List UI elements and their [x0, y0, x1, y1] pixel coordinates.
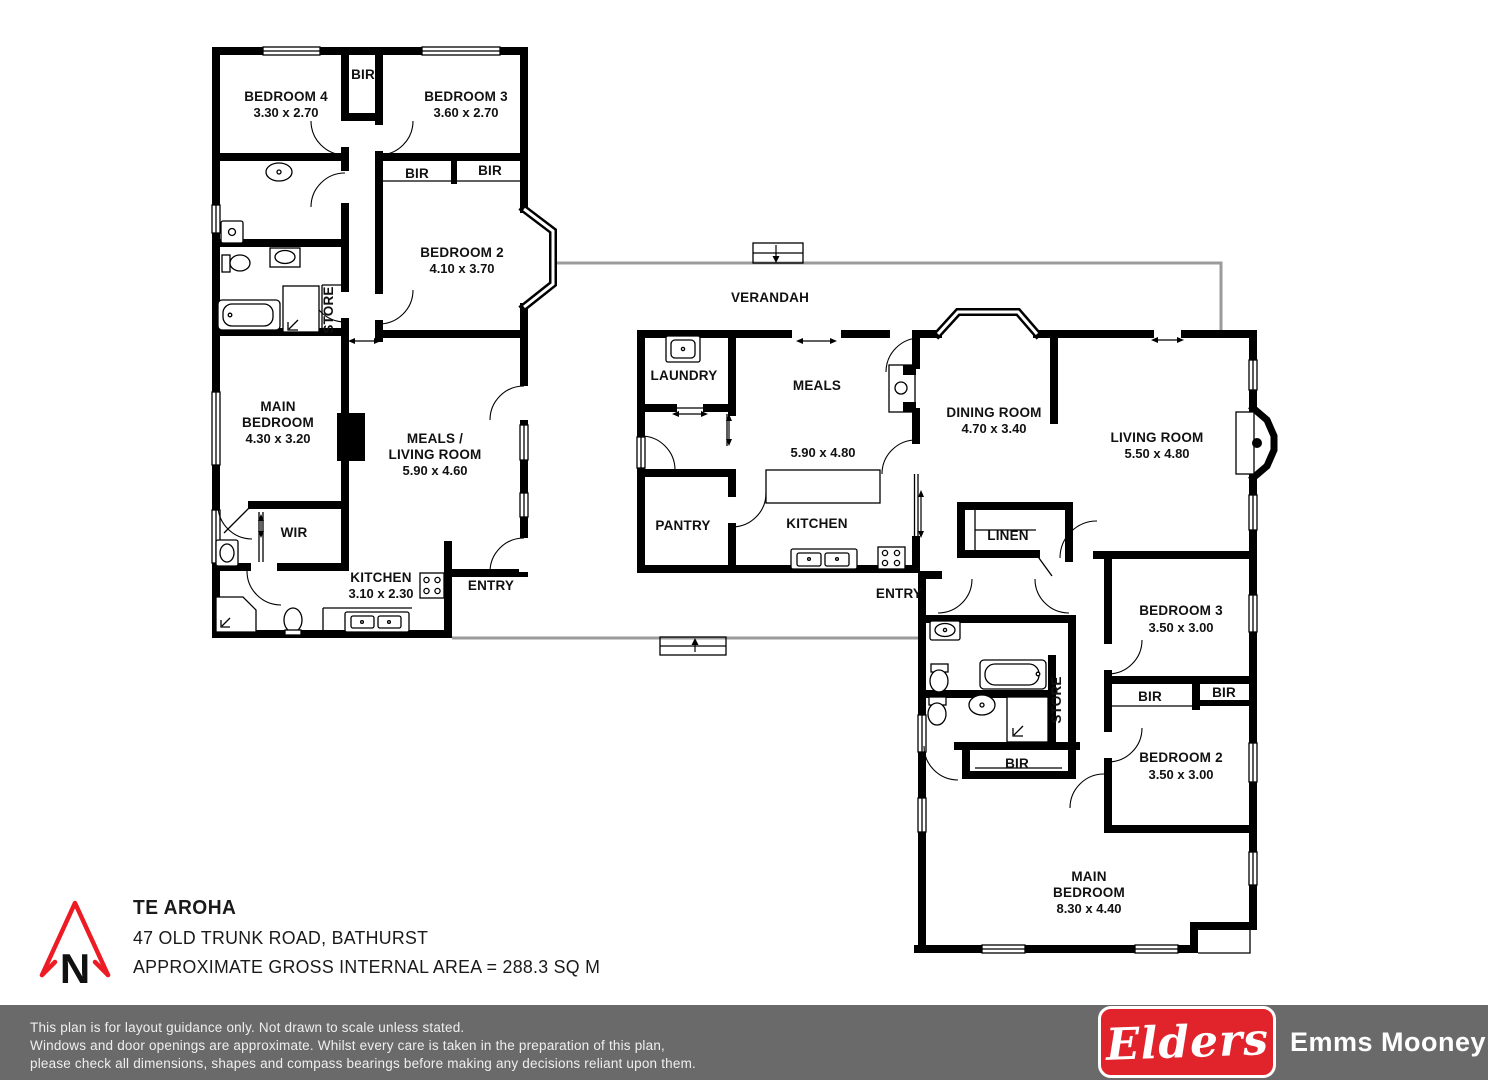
label-main-bedroom-dims: 8.30 x 4.40 [1056, 901, 1121, 916]
label-verandah: VERANDAH [731, 290, 809, 305]
window [520, 425, 528, 460]
label-meals-dims: 5.90 x 4.80 [790, 445, 855, 460]
label-bedroom4: BEDROOM 4 [244, 89, 328, 104]
floor-plan-svg: BEDROOM 4 3.30 x 2.70 BIR BEDROOM 3 3.60… [0, 0, 1488, 1005]
footer-bar: This plan is for layout guidance only. N… [0, 1005, 1488, 1080]
basin [266, 163, 292, 181]
label-bir: BIR [1212, 685, 1236, 700]
label-bedroom2: BEDROOM 2 [1139, 750, 1223, 765]
vanity [270, 248, 300, 267]
label-bedroom4-dims: 3.30 x 2.70 [253, 105, 318, 120]
label-main-bedroom: BEDROOM [1053, 885, 1125, 900]
disclaimer-line: This plan is for layout guidance only. N… [30, 1019, 696, 1037]
window [1249, 360, 1257, 390]
label-living-room: LIVING ROOM [1111, 430, 1204, 445]
label-meals: MEALS [793, 378, 841, 393]
label-bir: BIR [351, 67, 375, 82]
building-a-walls [216, 51, 553, 634]
label-meals-living: LIVING ROOM [389, 447, 482, 462]
label-entry: ENTRY [468, 578, 514, 593]
bath [980, 660, 1046, 689]
plan-title: TE AROHA [133, 897, 600, 920]
label-wir: WIR [281, 525, 308, 540]
label-bedroom2-dims: 4.10 x 3.70 [429, 261, 494, 276]
label-main-bedroom: MAIN [1071, 869, 1106, 884]
label-meals-living: MEALS / [407, 431, 463, 446]
shower [283, 286, 319, 332]
north-arrow-icon: N [28, 891, 123, 991]
label-bir: BIR [478, 163, 502, 178]
stove [878, 547, 905, 569]
label-store: STORE [1049, 676, 1064, 723]
label-bedroom3-dims: 3.50 x 3.00 [1148, 620, 1213, 635]
label-bedroom3: BEDROOM 3 [1139, 603, 1223, 618]
shower [216, 597, 256, 632]
plan-area: APPROXIMATE GROSS INTERNAL AREA = 288.3 … [133, 956, 600, 978]
shower [1007, 697, 1048, 742]
toilet [284, 608, 302, 635]
disclaimer-text: This plan is for layout guidance only. N… [30, 1019, 696, 1073]
window [1249, 743, 1257, 782]
title-block: TE AROHA 47 OLD TRUNK ROAD, BATHURST APP… [133, 897, 600, 978]
steps-bottom [660, 637, 726, 655]
label-main-bedroom: MAIN [260, 399, 295, 414]
island-bench [766, 470, 880, 503]
floor-plan-page: BEDROOM 4 3.30 x 2.70 BIR BEDROOM 3 3.60… [0, 0, 1488, 1080]
label-meals-living-dims: 5.90 x 4.60 [402, 463, 467, 478]
building-c-fixtures [928, 621, 1048, 742]
label-dining-room: DINING ROOM [946, 405, 1041, 420]
stove [420, 573, 444, 598]
agency-name: Emms Mooney [1290, 1005, 1486, 1080]
label-pantry: PANTRY [655, 518, 710, 533]
laundry-tub [666, 336, 700, 362]
window [637, 437, 645, 468]
label-bir: BIR [405, 166, 429, 181]
window [982, 945, 1025, 953]
window [1135, 945, 1178, 953]
label-main-bedroom: BEDROOM [242, 415, 314, 430]
kitchen-sink [323, 608, 412, 632]
window [422, 47, 500, 55]
window [520, 493, 528, 517]
window [1249, 595, 1257, 632]
label-kitchen: KITCHEN [350, 570, 411, 585]
basin [221, 221, 243, 243]
label-bir: BIR [1138, 689, 1162, 704]
toilet [928, 697, 946, 725]
window [1249, 852, 1257, 885]
window [212, 392, 220, 465]
toilet [930, 664, 948, 692]
window [212, 205, 220, 233]
steps-top [753, 243, 803, 263]
window [918, 798, 926, 832]
label-living-room-dims: 5.50 x 4.80 [1124, 446, 1189, 461]
toilet [222, 255, 250, 272]
disclaimer-line: please check all dimensions, shapes and … [30, 1055, 696, 1073]
label-bedroom2: BEDROOM 2 [420, 245, 504, 260]
basin [930, 621, 960, 640]
label-store: STORE [321, 286, 336, 333]
label-kitchen: KITCHEN [786, 516, 847, 531]
disclaimer-line: Windows and door openings are approximat… [30, 1037, 696, 1055]
label-bedroom2-dims: 3.50 x 3.00 [1148, 767, 1213, 782]
window [1249, 495, 1257, 530]
north-letter: N [60, 945, 90, 991]
elders-logo-text: Elders [1105, 1014, 1270, 1071]
label-bedroom3-dims: 3.60 x 2.70 [433, 105, 498, 120]
basin [969, 695, 995, 715]
kitchen-sink [791, 549, 857, 569]
label-bedroom3: BEDROOM 3 [424, 89, 508, 104]
basin [216, 540, 238, 566]
window [263, 47, 320, 55]
elders-logo: Elders [1098, 1006, 1276, 1078]
room-labels: BEDROOM 4 3.30 x 2.70 BIR BEDROOM 3 3.60… [242, 67, 1236, 916]
plan-address: 47 OLD TRUNK ROAD, BATHURST [133, 927, 600, 949]
label-main-bedroom-dims: 4.30 x 3.20 [245, 431, 310, 446]
label-kitchen-dims: 3.10 x 2.30 [348, 586, 413, 601]
window [918, 715, 926, 752]
label-laundry: LAUNDRY [651, 368, 718, 383]
label-dining-room-dims: 4.70 x 3.40 [961, 421, 1026, 436]
label-entry: ENTRY [876, 586, 922, 601]
label-bir: BIR [1005, 756, 1029, 771]
bath [218, 300, 280, 330]
label-linen: LINEN [987, 528, 1029, 543]
